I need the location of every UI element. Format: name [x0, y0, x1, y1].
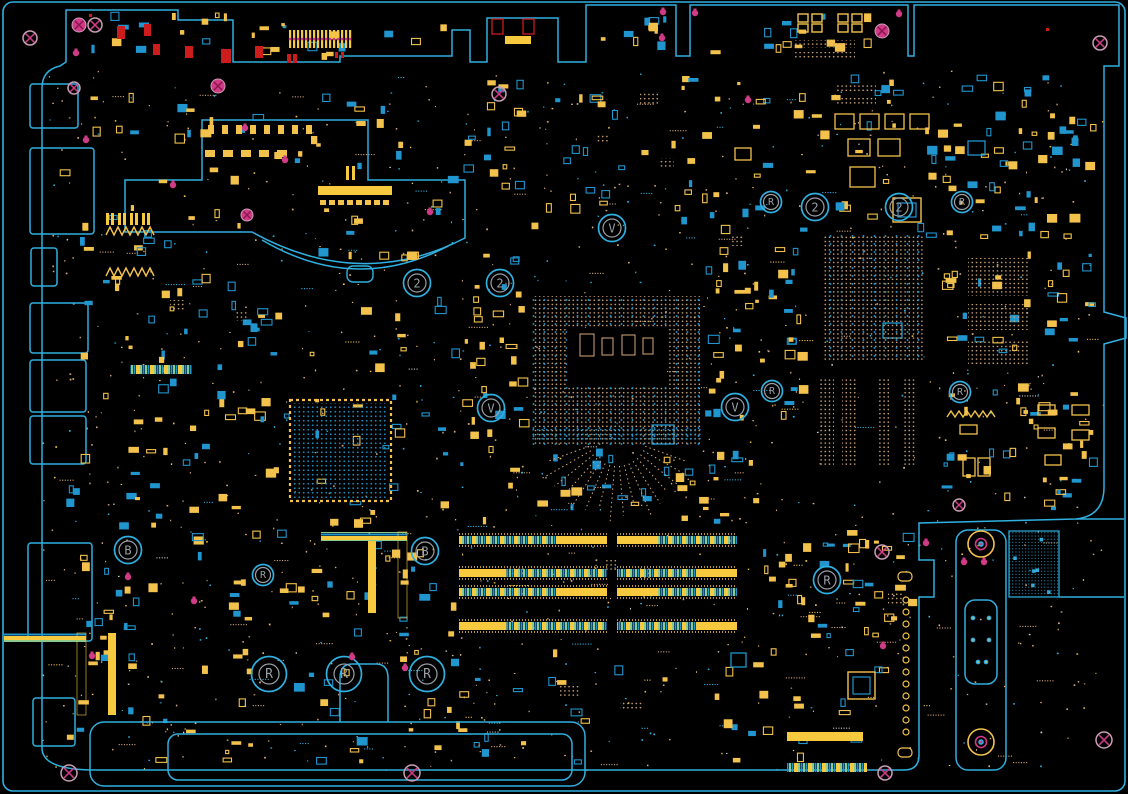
smd-component[interactable] [509, 381, 516, 386]
smd-component[interactable] [125, 587, 131, 594]
smd-component[interactable] [375, 363, 385, 372]
smd-component[interactable] [219, 399, 224, 408]
pin-pair[interactable] [147, 213, 150, 225]
pch-side-2[interactable] [968, 304, 1028, 330]
smd-component[interactable] [480, 342, 485, 350]
smd-component[interactable] [511, 356, 517, 364]
smd-component[interactable] [274, 467, 279, 473]
smd-component[interactable] [202, 444, 210, 449]
smd-component[interactable] [246, 408, 256, 414]
ec-chip[interactable] [293, 403, 388, 498]
smd-component[interactable] [357, 737, 368, 745]
smd-component[interactable] [280, 588, 289, 593]
smd-component[interactable] [346, 231, 354, 235]
smd-component[interactable] [500, 337, 504, 343]
smd-component[interactable] [80, 237, 85, 246]
smd-component[interactable] [764, 44, 774, 49]
ref-marker-R[interactable]: R [952, 192, 973, 213]
smd-component[interactable] [1073, 158, 1080, 166]
smd-component[interactable] [448, 176, 459, 183]
smd-component[interactable] [131, 472, 140, 475]
smd-component[interactable] [671, 141, 675, 149]
smd-component[interactable] [271, 352, 278, 355]
smd-component[interactable] [448, 631, 454, 636]
smd-component[interactable] [785, 280, 792, 284]
smd-component[interactable] [957, 335, 967, 341]
smd-component[interactable] [715, 694, 720, 700]
smd-component[interactable] [793, 696, 800, 701]
smd-component[interactable] [159, 694, 165, 698]
smd-component[interactable] [889, 80, 894, 86]
smd-component[interactable] [84, 301, 92, 305]
red-component[interactable] [293, 54, 297, 63]
ref-marker-V[interactable]: V [478, 395, 505, 422]
smd-component[interactable] [516, 292, 522, 298]
smd-component[interactable] [129, 346, 133, 349]
smd-component[interactable] [187, 130, 191, 137]
smd-component[interactable] [855, 602, 865, 606]
smd-component[interactable] [465, 339, 468, 344]
smd-component[interactable] [312, 569, 323, 573]
smd-component[interactable] [1085, 162, 1095, 170]
smd-component[interactable] [232, 506, 241, 509]
smd-component[interactable] [346, 166, 349, 180]
smd-component[interactable] [218, 364, 223, 370]
ref-marker-V[interactable]: V [722, 394, 749, 421]
smd-component[interactable] [188, 216, 194, 220]
smd-component[interactable] [676, 473, 684, 482]
smd-component[interactable] [681, 217, 687, 225]
smd-component[interactable] [238, 341, 244, 347]
smd-component[interactable] [131, 205, 134, 211]
smd-component[interactable] [799, 385, 809, 394]
smd-component[interactable] [946, 278, 957, 283]
smd-component[interactable] [827, 544, 835, 547]
smd-component[interactable] [791, 269, 795, 275]
smd-component[interactable] [699, 497, 709, 504]
smd-component[interactable] [195, 453, 199, 459]
smd-component[interactable] [295, 158, 300, 163]
smd-component[interactable] [163, 448, 167, 455]
smd-component[interactable] [735, 345, 742, 352]
smd-component[interactable] [928, 173, 936, 180]
smd-component[interactable] [318, 248, 328, 257]
smd-component[interactable] [309, 673, 314, 677]
ref-marker-B[interactable]: B [412, 538, 439, 565]
pch-side-3[interactable] [968, 340, 1028, 366]
smd-component[interactable] [794, 704, 804, 709]
smd-component[interactable] [198, 552, 202, 561]
smd-component[interactable] [734, 290, 745, 294]
smd-component[interactable] [769, 577, 776, 582]
smd-component[interactable] [753, 662, 764, 667]
smd-component[interactable] [184, 329, 187, 335]
smd-component[interactable] [808, 615, 814, 622]
smd-component[interactable] [330, 519, 338, 526]
smd-component[interactable] [1016, 398, 1020, 405]
pin-pair[interactable] [118, 213, 121, 225]
smd-component[interactable] [347, 102, 357, 107]
smd-component[interactable] [1029, 419, 1033, 424]
smd-component[interactable] [349, 252, 352, 259]
smd-component[interactable] [356, 121, 365, 126]
smd-component[interactable] [130, 130, 139, 134]
smd-component[interactable] [400, 656, 407, 662]
pin-pair[interactable] [142, 213, 145, 225]
smd-component[interactable] [111, 276, 121, 280]
smd-component[interactable] [715, 97, 721, 102]
pin-pair[interactable] [135, 213, 138, 225]
smd-component[interactable] [537, 500, 548, 506]
smd-component[interactable] [357, 163, 361, 169]
smd-component[interactable] [733, 329, 741, 333]
smd-component[interactable] [1038, 155, 1047, 163]
smd-component[interactable] [271, 47, 280, 52]
smd-component[interactable] [487, 429, 492, 437]
smd-component[interactable] [487, 80, 495, 85]
smd-component[interactable] [508, 483, 513, 489]
smd-component[interactable] [643, 496, 652, 501]
smd-component[interactable] [601, 37, 606, 41]
smd-component[interactable] [361, 307, 372, 315]
smd-component[interactable] [720, 513, 729, 516]
smd-component[interactable] [836, 202, 845, 210]
smd-component[interactable] [484, 155, 491, 161]
smd-component[interactable] [109, 614, 112, 620]
smd-component[interactable] [352, 166, 355, 180]
smd-component[interactable] [710, 50, 720, 54]
smd-component[interactable] [710, 212, 715, 218]
smd-component[interactable] [598, 101, 606, 107]
smd-component[interactable] [159, 357, 164, 363]
smd-component[interactable] [789, 337, 794, 341]
smd-component[interactable] [490, 169, 499, 177]
smd-component[interactable] [1019, 231, 1023, 236]
smd-component[interactable] [689, 180, 692, 187]
smd-component[interactable] [1035, 197, 1038, 203]
smd-component[interactable] [392, 395, 396, 400]
smd-component[interactable] [202, 19, 209, 25]
smd-component[interactable] [753, 125, 760, 129]
smd-component[interactable] [518, 306, 524, 313]
pin-pair[interactable] [130, 213, 133, 225]
smd-component[interactable] [723, 263, 728, 272]
smd-component[interactable] [763, 163, 773, 168]
smd-component[interactable] [769, 290, 774, 298]
smd-component[interactable] [820, 130, 829, 139]
smd-component[interactable] [119, 522, 129, 529]
smd-component[interactable] [407, 252, 417, 260]
smd-component[interactable] [709, 389, 716, 394]
smd-component[interactable] [811, 633, 821, 637]
smd-component[interactable] [324, 208, 329, 212]
smd-component[interactable] [892, 123, 896, 127]
smd-component[interactable] [447, 707, 452, 713]
smd-component[interactable] [1089, 254, 1092, 257]
smd-component[interactable] [66, 499, 74, 507]
red-component[interactable] [117, 26, 125, 39]
smd-component[interactable] [760, 359, 765, 363]
smd-component[interactable] [162, 291, 170, 299]
smd-component[interactable] [436, 208, 441, 215]
smd-component[interactable] [483, 254, 490, 258]
smd-component[interactable] [434, 745, 441, 750]
smd-component[interactable] [1060, 318, 1068, 321]
smd-component[interactable] [1063, 405, 1069, 410]
smd-component[interactable] [377, 119, 384, 128]
smd-component[interactable] [440, 24, 446, 31]
smd-component[interactable] [797, 352, 807, 361]
smd-component[interactable] [370, 510, 375, 515]
smd-component[interactable] [116, 590, 123, 597]
smd-component[interactable] [258, 315, 265, 318]
smd-component[interactable] [472, 417, 475, 425]
smd-component[interactable] [82, 223, 88, 231]
smd-component[interactable] [733, 451, 739, 459]
smd-component[interactable] [1048, 132, 1055, 140]
smd-component[interactable] [368, 537, 376, 613]
smd-component[interactable] [170, 379, 177, 387]
smd-component[interactable] [992, 226, 1001, 232]
smd-component[interactable] [947, 230, 953, 235]
smd-component[interactable] [125, 336, 128, 340]
smd-component[interactable] [135, 497, 140, 500]
smd-component[interactable] [682, 86, 685, 90]
smd-component[interactable] [663, 16, 666, 22]
smd-component[interactable] [395, 313, 400, 321]
smd-component[interactable] [261, 398, 270, 406]
smd-component[interactable] [81, 353, 88, 360]
smd-component[interactable] [384, 31, 393, 38]
smd-component[interactable] [237, 223, 240, 229]
pcb-boardview-canvas[interactable]: 2222VVVRRRRBBRRRRR [0, 0, 1128, 794]
smd-component[interactable] [186, 730, 196, 734]
smd-component[interactable] [949, 186, 957, 192]
smd-component[interactable] [865, 583, 874, 587]
smd-component[interactable] [230, 593, 240, 597]
smd-component[interactable] [190, 426, 196, 432]
smd-component[interactable] [487, 128, 490, 137]
smd-component[interactable] [451, 659, 459, 666]
smd-component[interactable] [91, 96, 98, 100]
smd-component[interactable] [864, 13, 871, 22]
smd-component[interactable] [517, 110, 526, 116]
smd-component[interactable] [1015, 206, 1026, 210]
pch-side-1[interactable] [968, 258, 1028, 296]
smd-component[interactable] [942, 485, 953, 488]
smd-component[interactable] [151, 523, 156, 528]
smd-component[interactable] [648, 25, 658, 30]
red-component[interactable] [341, 52, 344, 58]
smd-component[interactable] [737, 82, 740, 85]
smd-component[interactable] [67, 735, 74, 740]
pch-col-3[interactable] [877, 378, 891, 466]
smd-component[interactable] [224, 13, 227, 21]
pch-col-4[interactable] [903, 378, 917, 466]
smd-component[interactable] [784, 309, 793, 313]
smd-component[interactable] [202, 666, 208, 674]
smd-component[interactable] [682, 516, 688, 521]
smd-component[interactable] [748, 731, 756, 736]
smd-component[interactable] [124, 623, 127, 630]
pin-pair[interactable] [106, 213, 109, 225]
smd-component[interactable] [381, 106, 386, 114]
smd-component[interactable] [749, 460, 753, 466]
smd-component[interactable] [687, 158, 695, 164]
smd-component[interactable] [483, 517, 486, 524]
smd-component[interactable] [778, 270, 788, 279]
smd-component[interactable] [82, 562, 90, 571]
smd-component[interactable] [742, 209, 748, 218]
smd-component[interactable] [785, 554, 792, 562]
smd-component[interactable] [96, 652, 100, 660]
smd-component[interactable] [443, 452, 448, 455]
smd-component[interactable] [219, 494, 228, 501]
smd-component[interactable] [1082, 451, 1087, 459]
smd-component[interactable] [234, 581, 243, 585]
smd-component[interactable] [791, 387, 798, 391]
smd-component[interactable] [217, 391, 225, 399]
smd-component[interactable] [806, 170, 816, 173]
smd-component[interactable] [326, 52, 334, 56]
smd-component[interactable] [275, 313, 282, 320]
smd-component[interactable] [78, 700, 89, 704]
smd-component[interactable] [624, 31, 634, 37]
smd-component[interactable] [716, 288, 720, 293]
smd-component[interactable] [354, 218, 363, 223]
smd-component[interactable] [717, 452, 724, 460]
smd-component[interactable] [724, 719, 733, 728]
smd-component[interactable] [260, 26, 269, 30]
smd-component[interactable] [482, 749, 489, 757]
smd-component[interactable] [896, 555, 905, 559]
smd-component[interactable] [128, 663, 137, 669]
smd-component[interactable] [398, 142, 403, 148]
smd-component[interactable] [713, 192, 719, 197]
smd-component[interactable] [1028, 251, 1031, 258]
smd-component[interactable] [784, 401, 794, 405]
smd-component[interactable] [156, 514, 163, 519]
smd-component[interactable] [514, 407, 523, 411]
smd-component[interactable] [955, 146, 965, 154]
smd-component[interactable] [1080, 441, 1083, 448]
smd-component[interactable] [245, 617, 252, 621]
smd-component[interactable] [281, 23, 284, 26]
smd-component[interactable] [553, 649, 557, 657]
smd-component[interactable] [995, 112, 1005, 121]
smd-component[interactable] [327, 581, 332, 587]
smd-component[interactable] [1047, 320, 1057, 327]
smd-component[interactable] [968, 181, 978, 188]
smd-component[interactable] [1059, 477, 1067, 480]
smd-component[interactable] [560, 490, 570, 497]
smd-component[interactable] [210, 117, 214, 125]
smd-component[interactable] [369, 351, 377, 355]
smd-component[interactable] [294, 683, 305, 692]
flex-connector[interactable] [130, 365, 192, 374]
smd-component[interactable] [759, 691, 768, 699]
smd-component[interactable] [745, 288, 751, 294]
smd-component[interactable] [510, 468, 520, 472]
smd-component[interactable] [705, 410, 711, 416]
smd-component[interactable] [1069, 214, 1080, 223]
smd-component[interactable] [289, 601, 298, 605]
smd-component[interactable] [180, 30, 184, 35]
smd-component[interactable] [150, 483, 160, 488]
flex-connector[interactable] [4, 633, 86, 642]
smd-component[interactable] [441, 501, 449, 508]
smd-component[interactable] [778, 600, 782, 608]
smd-component[interactable] [703, 507, 709, 510]
smd-component[interactable] [103, 280, 110, 283]
smd-component[interactable] [88, 661, 97, 665]
smd-component[interactable] [657, 41, 665, 50]
flex-connector[interactable] [321, 532, 407, 541]
smd-component[interactable] [210, 168, 218, 173]
smd-component[interactable] [298, 151, 302, 157]
smd-component[interactable] [803, 543, 811, 552]
smd-component[interactable] [881, 85, 890, 93]
smd-component[interactable] [475, 678, 481, 681]
red-component[interactable] [255, 46, 263, 58]
smd-component[interactable] [963, 313, 967, 319]
smd-component[interactable] [1009, 161, 1018, 169]
smd-component[interactable] [1069, 338, 1078, 342]
smd-component[interactable] [177, 288, 182, 296]
smd-component[interactable] [571, 487, 582, 495]
red-component[interactable] [153, 44, 160, 55]
red-component[interactable] [144, 24, 151, 36]
ref-marker-R[interactable]: R [762, 381, 783, 402]
pch-col-2[interactable] [842, 378, 856, 466]
smd-component[interactable] [392, 550, 400, 558]
smd-component[interactable] [557, 680, 566, 685]
smd-component[interactable] [159, 180, 167, 184]
smd-component[interactable] [86, 621, 92, 627]
smd-component[interactable] [177, 104, 187, 112]
smd-component[interactable] [1025, 89, 1032, 96]
smd-component[interactable] [596, 449, 603, 457]
smd-component[interactable] [401, 580, 409, 584]
pin-pair[interactable] [111, 213, 114, 225]
ref-marker-B[interactable]: B [115, 537, 142, 564]
red-component[interactable] [221, 49, 231, 63]
smd-component[interactable] [553, 454, 558, 461]
smd-component[interactable] [713, 409, 720, 417]
smd-component[interactable] [1089, 430, 1093, 435]
smd-component[interactable] [1072, 479, 1082, 483]
smd-component[interactable] [713, 477, 718, 480]
smd-component[interactable] [782, 21, 791, 25]
smd-component[interactable] [763, 549, 766, 557]
ref-marker-R[interactable]: R [761, 192, 782, 213]
smd-component[interactable] [470, 432, 479, 439]
smd-component[interactable] [134, 419, 144, 424]
smd-component[interactable] [1051, 507, 1056, 511]
smd-component[interactable] [399, 633, 409, 636]
smd-component[interactable] [77, 728, 84, 732]
smd-component[interactable] [812, 114, 822, 118]
smd-component[interactable] [189, 507, 199, 513]
smd-component[interactable] [945, 156, 955, 160]
smd-component[interactable] [1043, 478, 1047, 483]
smd-component[interactable] [688, 78, 698, 82]
smd-component[interactable] [128, 707, 133, 714]
smd-component[interactable] [779, 562, 786, 568]
smd-component[interactable] [108, 633, 116, 715]
smd-component[interactable] [233, 611, 240, 617]
smd-component[interactable] [555, 98, 560, 102]
